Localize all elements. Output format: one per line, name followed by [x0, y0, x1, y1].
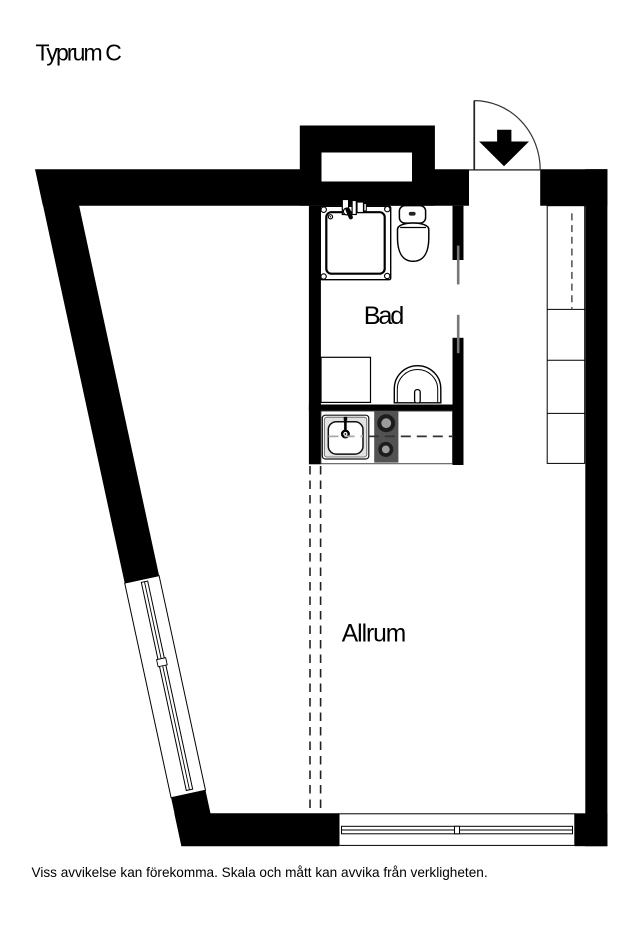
svg-text:Bad: Bad — [364, 302, 405, 330]
svg-text:Viss avvikelse kan förekomma.: Viss avvikelse kan förekomma. Skala och … — [32, 865, 488, 880]
svg-text:Allrum: Allrum — [342, 621, 407, 648]
svg-text:Typrum C: Typrum C — [36, 39, 122, 65]
